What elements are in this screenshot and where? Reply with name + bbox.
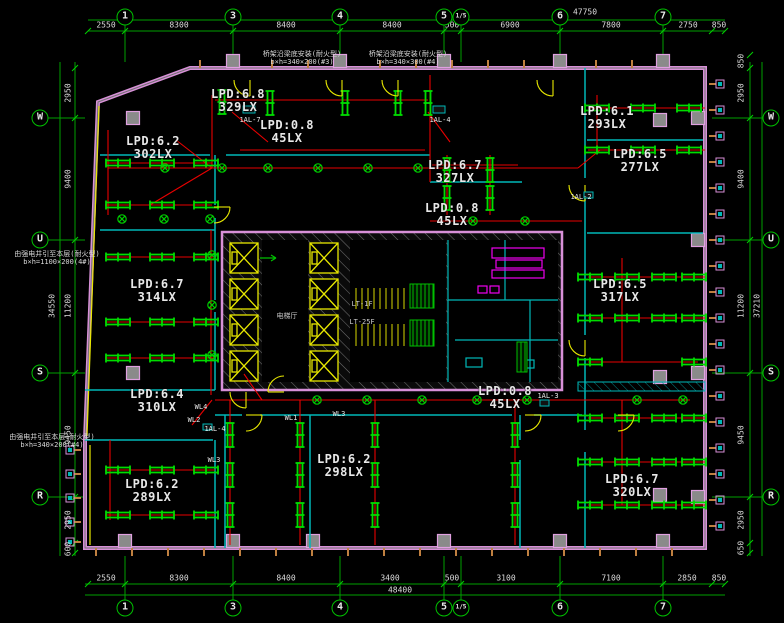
cable-tray-note: 由强电井引至本层(耐火型)b×h=1100×200(4#) bbox=[14, 250, 99, 266]
floor-plan-canvas bbox=[0, 0, 784, 623]
room-label: LPD:6.5317LX bbox=[593, 278, 647, 304]
dimension-text: 7100 bbox=[601, 574, 620, 583]
grid-bubble-top: 4 bbox=[332, 9, 349, 26]
circuit-tag: 1AL-4 bbox=[204, 425, 225, 433]
dimension-text: 3400 bbox=[380, 574, 399, 583]
dimension-text: 8400 bbox=[382, 21, 401, 30]
grid-bubble-top: 1 bbox=[117, 9, 134, 26]
dimension-text: 7800 bbox=[601, 21, 620, 30]
dimension-text: 8400 bbox=[276, 574, 295, 583]
room-label: LPD:6.1293LX bbox=[580, 105, 634, 131]
grid-bubble-right: R bbox=[763, 489, 780, 506]
room-label: LPD:0.845LX bbox=[478, 385, 532, 411]
grid-bubble-bottom: 4 bbox=[332, 600, 349, 617]
ahu-block bbox=[410, 320, 434, 346]
room-lux: 45LX bbox=[478, 398, 532, 411]
dimension-text: 2950 bbox=[737, 510, 746, 529]
circuit-tag: 1AL-3 bbox=[537, 392, 558, 400]
room-label: LPD:0.845LX bbox=[260, 119, 314, 145]
stair-label: LT-1F bbox=[351, 300, 372, 308]
circuit-tag: WL3 bbox=[333, 410, 346, 418]
room-lux: 317LX bbox=[593, 291, 647, 304]
overall-dimension: 47750 bbox=[573, 8, 597, 17]
dimension-text: 850 bbox=[712, 574, 726, 583]
note-line: 由强电井引至本层(耐火型) bbox=[14, 250, 99, 258]
circuit-tag: WL2 bbox=[188, 416, 201, 424]
note-line: b×h=340×300(#4) bbox=[369, 58, 447, 66]
room-label: LPD:6.7314LX bbox=[130, 278, 184, 304]
dimension-text: 850 bbox=[737, 54, 746, 68]
circuit-tag: WL4 bbox=[195, 403, 208, 411]
room-lux: 298LX bbox=[317, 466, 371, 479]
room-label: LPD:6.2289LX bbox=[125, 478, 179, 504]
room-label: LPD:6.2302LX bbox=[126, 135, 180, 161]
dimension-text: 9450 bbox=[737, 425, 746, 444]
room-lux: 314LX bbox=[130, 291, 184, 304]
dimension-text: 850 bbox=[712, 21, 726, 30]
circuit-tag: WL3 bbox=[208, 456, 221, 464]
overall-dimension: 37210 bbox=[753, 294, 762, 318]
grid-bubble-right: W bbox=[763, 110, 780, 127]
grid-bubble-left: S bbox=[32, 365, 49, 382]
dimension-text: 2550 bbox=[96, 574, 115, 583]
room-label: LPD:6.8329LX bbox=[211, 88, 265, 114]
grid-bubble-top: 5 bbox=[436, 9, 453, 26]
circuit-tag: 1AL-7 bbox=[239, 116, 260, 124]
grid-bubble-right: S bbox=[763, 365, 780, 382]
dimension-text: 500 bbox=[445, 574, 459, 583]
room-label: LPD:6.2298LX bbox=[317, 453, 371, 479]
dimension-text: 11200 bbox=[737, 294, 746, 318]
dimension-text: 9400 bbox=[64, 169, 73, 188]
grid-bubble-right: U bbox=[763, 232, 780, 249]
room-lux: 302LX bbox=[126, 148, 180, 161]
grid-bubble-bottom: 1 bbox=[117, 600, 134, 617]
grid-bubble-left: U bbox=[32, 232, 49, 249]
ahu-block bbox=[410, 284, 434, 308]
grid-bubble-bottom: 6 bbox=[552, 600, 569, 617]
grid-bubble-top: 6 bbox=[552, 9, 569, 26]
note-line: 桥架沿梁底安装(耐火型) bbox=[369, 50, 447, 58]
dimension-text: 2950 bbox=[64, 510, 73, 529]
room-lux: 45LX bbox=[260, 132, 314, 145]
room-lux: 320LX bbox=[605, 486, 659, 499]
grid-bubble-top: 7 bbox=[655, 9, 672, 26]
room-label: LPD:6.7327LX bbox=[428, 159, 482, 185]
dimension-text: 11200 bbox=[64, 294, 73, 318]
dimension-text: 2750 bbox=[678, 21, 697, 30]
grid-bubble-bottom: 1/5 bbox=[453, 600, 470, 617]
room-label: LPD:6.4310LX bbox=[130, 388, 184, 414]
overall-dimension: 48400 bbox=[388, 586, 412, 595]
note-line: 由强电井引至本层(耐火型) bbox=[9, 433, 94, 441]
grid-bubble-left: R bbox=[32, 489, 49, 506]
room-lux: 45LX bbox=[425, 215, 479, 228]
grid-bubble-left: W bbox=[32, 110, 49, 127]
note-line: b×h=1100×200(4#) bbox=[14, 258, 99, 266]
cable-tray-note: 由强电井引至本层(耐火型)b×h=340×200(#4) bbox=[9, 433, 94, 449]
grid-bubble-top: 3 bbox=[225, 9, 242, 26]
room-lux: 327LX bbox=[428, 172, 482, 185]
grid-bubble-bottom: 5 bbox=[436, 600, 453, 617]
dimension-text: 2950 bbox=[64, 83, 73, 102]
dimension-text: 2550 bbox=[96, 21, 115, 30]
note-line: b×h=340×200(#3) bbox=[263, 58, 341, 66]
dimension-text: 6900 bbox=[500, 21, 519, 30]
room-lux: 293LX bbox=[580, 118, 634, 131]
room-lux: 277LX bbox=[613, 161, 667, 174]
note-line: b×h=340×200(#4) bbox=[9, 441, 94, 449]
circuit-tag: 1AL-2 bbox=[570, 193, 591, 201]
dimension-text: 3100 bbox=[496, 574, 515, 583]
elevator-hall-label: 电梯厅 bbox=[277, 311, 298, 321]
note-line: 桥架沿梁底安装(耐火型) bbox=[263, 50, 341, 58]
stair-label: LT-25F bbox=[349, 318, 374, 326]
dimension-text: 2850 bbox=[677, 574, 696, 583]
shaft-grille bbox=[517, 342, 527, 372]
grid-bubble-bottom: 7 bbox=[655, 600, 672, 617]
room-lux: 310LX bbox=[130, 401, 184, 414]
circuit-tag: 1AL-4 bbox=[429, 116, 450, 124]
room-lux: 289LX bbox=[125, 491, 179, 504]
room-lux: 329LX bbox=[211, 101, 265, 114]
floor-plan: 1 3 4 5 1/5 6 7 1 3 4 5 1/5 6 7 W U S R … bbox=[0, 0, 784, 623]
dimension-text: 8300 bbox=[169, 21, 188, 30]
dimension-text: 2950 bbox=[737, 83, 746, 102]
room-label: LPD:0.845LX bbox=[425, 202, 479, 228]
overall-dimension: 34550 bbox=[48, 294, 57, 318]
cable-tray-note: 桥架沿梁底安装(耐火型)b×h=340×200(#3) bbox=[263, 50, 341, 66]
room-label: LPD:6.5277LX bbox=[613, 148, 667, 174]
dimension-text: 600 bbox=[64, 542, 73, 556]
grid-bubble-top: 1/5 bbox=[453, 9, 470, 26]
grid-bubble-bottom: 3 bbox=[225, 600, 242, 617]
dimension-text: 650 bbox=[737, 541, 746, 555]
cable-tray-note: 桥架沿梁底安装(耐火型)b×h=340×300(#4) bbox=[369, 50, 447, 66]
dimension-text: 8400 bbox=[276, 21, 295, 30]
dimension-text: 9400 bbox=[737, 169, 746, 188]
circuit-tag: WL1 bbox=[285, 414, 298, 422]
dimension-text: 8300 bbox=[169, 574, 188, 583]
corridor-hatched-strip bbox=[578, 382, 705, 391]
room-label: LPD:6.7320LX bbox=[605, 473, 659, 499]
